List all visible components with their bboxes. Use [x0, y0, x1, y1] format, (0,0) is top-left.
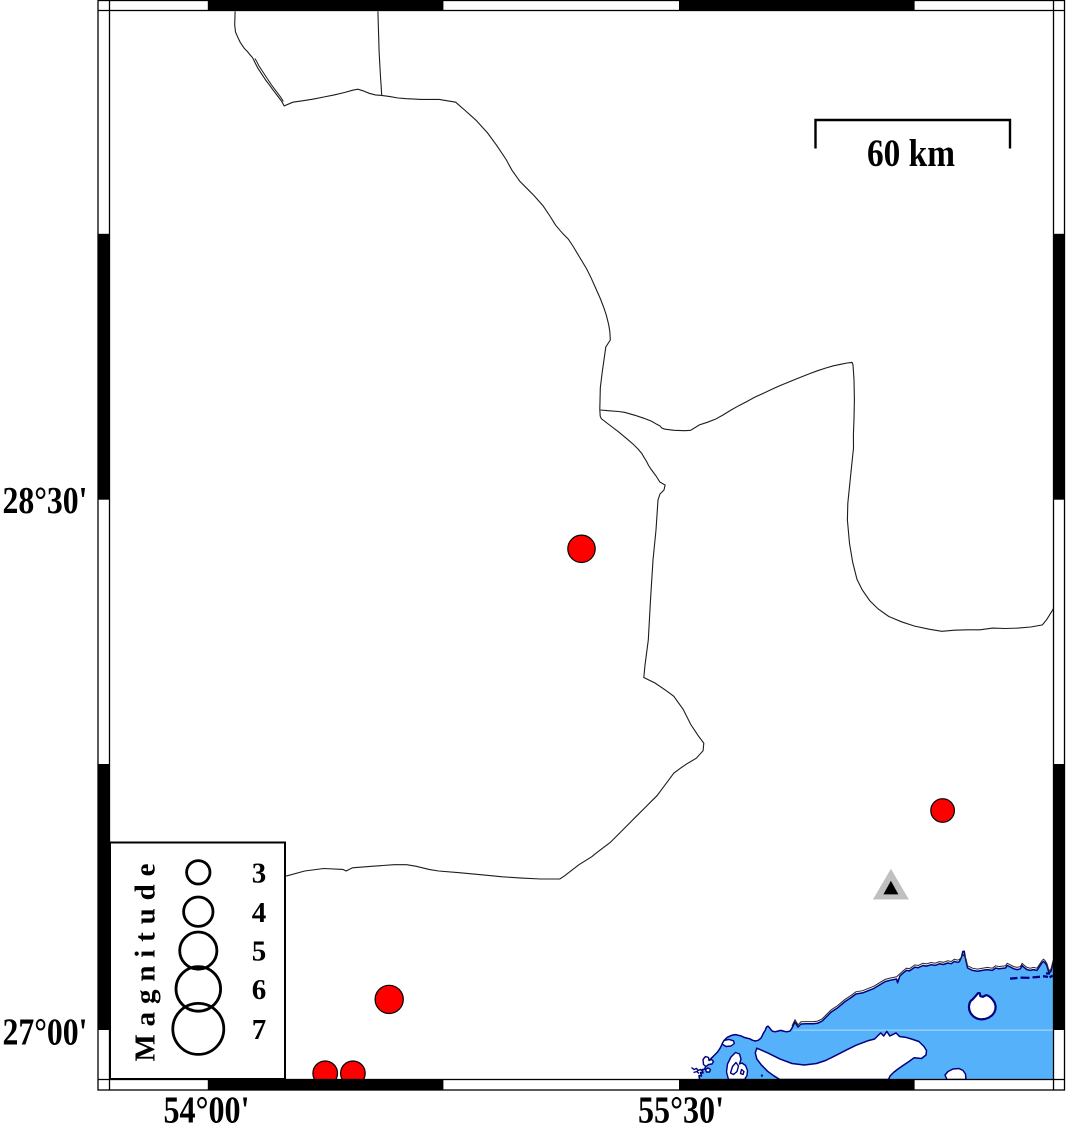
svg-text:5: 5 [252, 936, 267, 968]
svg-text:4: 4 [252, 897, 267, 929]
svg-text:55°30': 55°30' [638, 1090, 724, 1128]
svg-text:54°00': 54°00' [164, 1090, 250, 1128]
svg-text:3: 3 [252, 857, 267, 889]
svg-text:27°00': 27°00' [3, 1011, 88, 1053]
svg-text:28°30': 28°30' [3, 480, 88, 522]
svg-text:7: 7 [252, 1014, 267, 1046]
svg-text:6: 6 [252, 974, 267, 1006]
svg-text:60 km: 60 km [867, 132, 955, 175]
